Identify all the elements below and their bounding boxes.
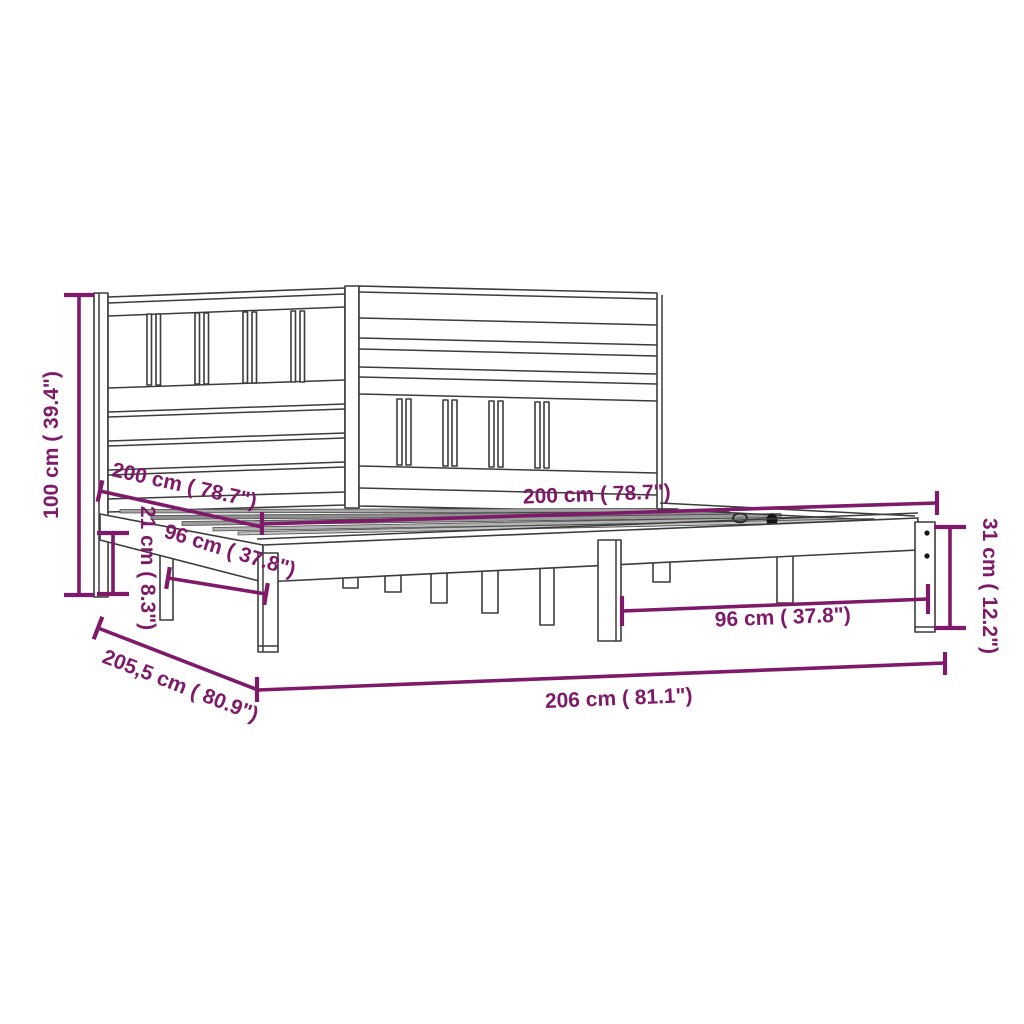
dimension-label-total-height: 100 cm ( 39.4")	[40, 371, 63, 519]
bed-frame-drawing: 100 cm ( 39.4") 200 cm ( 78.7") 21 cm ( …	[0, 0, 1024, 1024]
leg	[482, 567, 498, 613]
dimension-foot-height: 31 cm ( 12.2")	[934, 518, 1001, 654]
leg	[431, 570, 447, 603]
foot-end-post	[915, 522, 935, 632]
dimension-label-foot-height: 31 cm ( 12.2")	[978, 518, 1001, 654]
dimension-label-depth: 205,5 cm ( 80.9")	[99, 645, 261, 726]
dimension-label-right-span: 96 cm ( 37.8")	[714, 603, 851, 631]
dimension-right-span: 96 cm ( 37.8")	[622, 584, 928, 632]
headboard-left-leg	[94, 293, 108, 597]
headboard-center-stile	[345, 286, 359, 508]
dimension-total-length: 206 cm ( 81.1")	[257, 652, 945, 713]
dimension-total-height: 100 cm ( 39.4")	[40, 295, 94, 595]
center-front-leg	[598, 540, 621, 641]
headboard-right-panel	[359, 286, 657, 512]
leg	[540, 564, 554, 625]
screw-dot	[924, 530, 929, 535]
dimension-label-rail-height: 21 cm ( 8.3")	[136, 506, 159, 630]
product-dimension-diagram: 100 cm ( 39.4") 200 cm ( 78.7") 21 cm ( …	[0, 0, 1024, 1024]
leg	[777, 555, 793, 603]
dimension-label-total-length: 206 cm ( 81.1")	[544, 684, 693, 713]
dimension-depth: 205,5 cm ( 80.9")	[94, 617, 262, 727]
screw-dot	[924, 553, 929, 558]
